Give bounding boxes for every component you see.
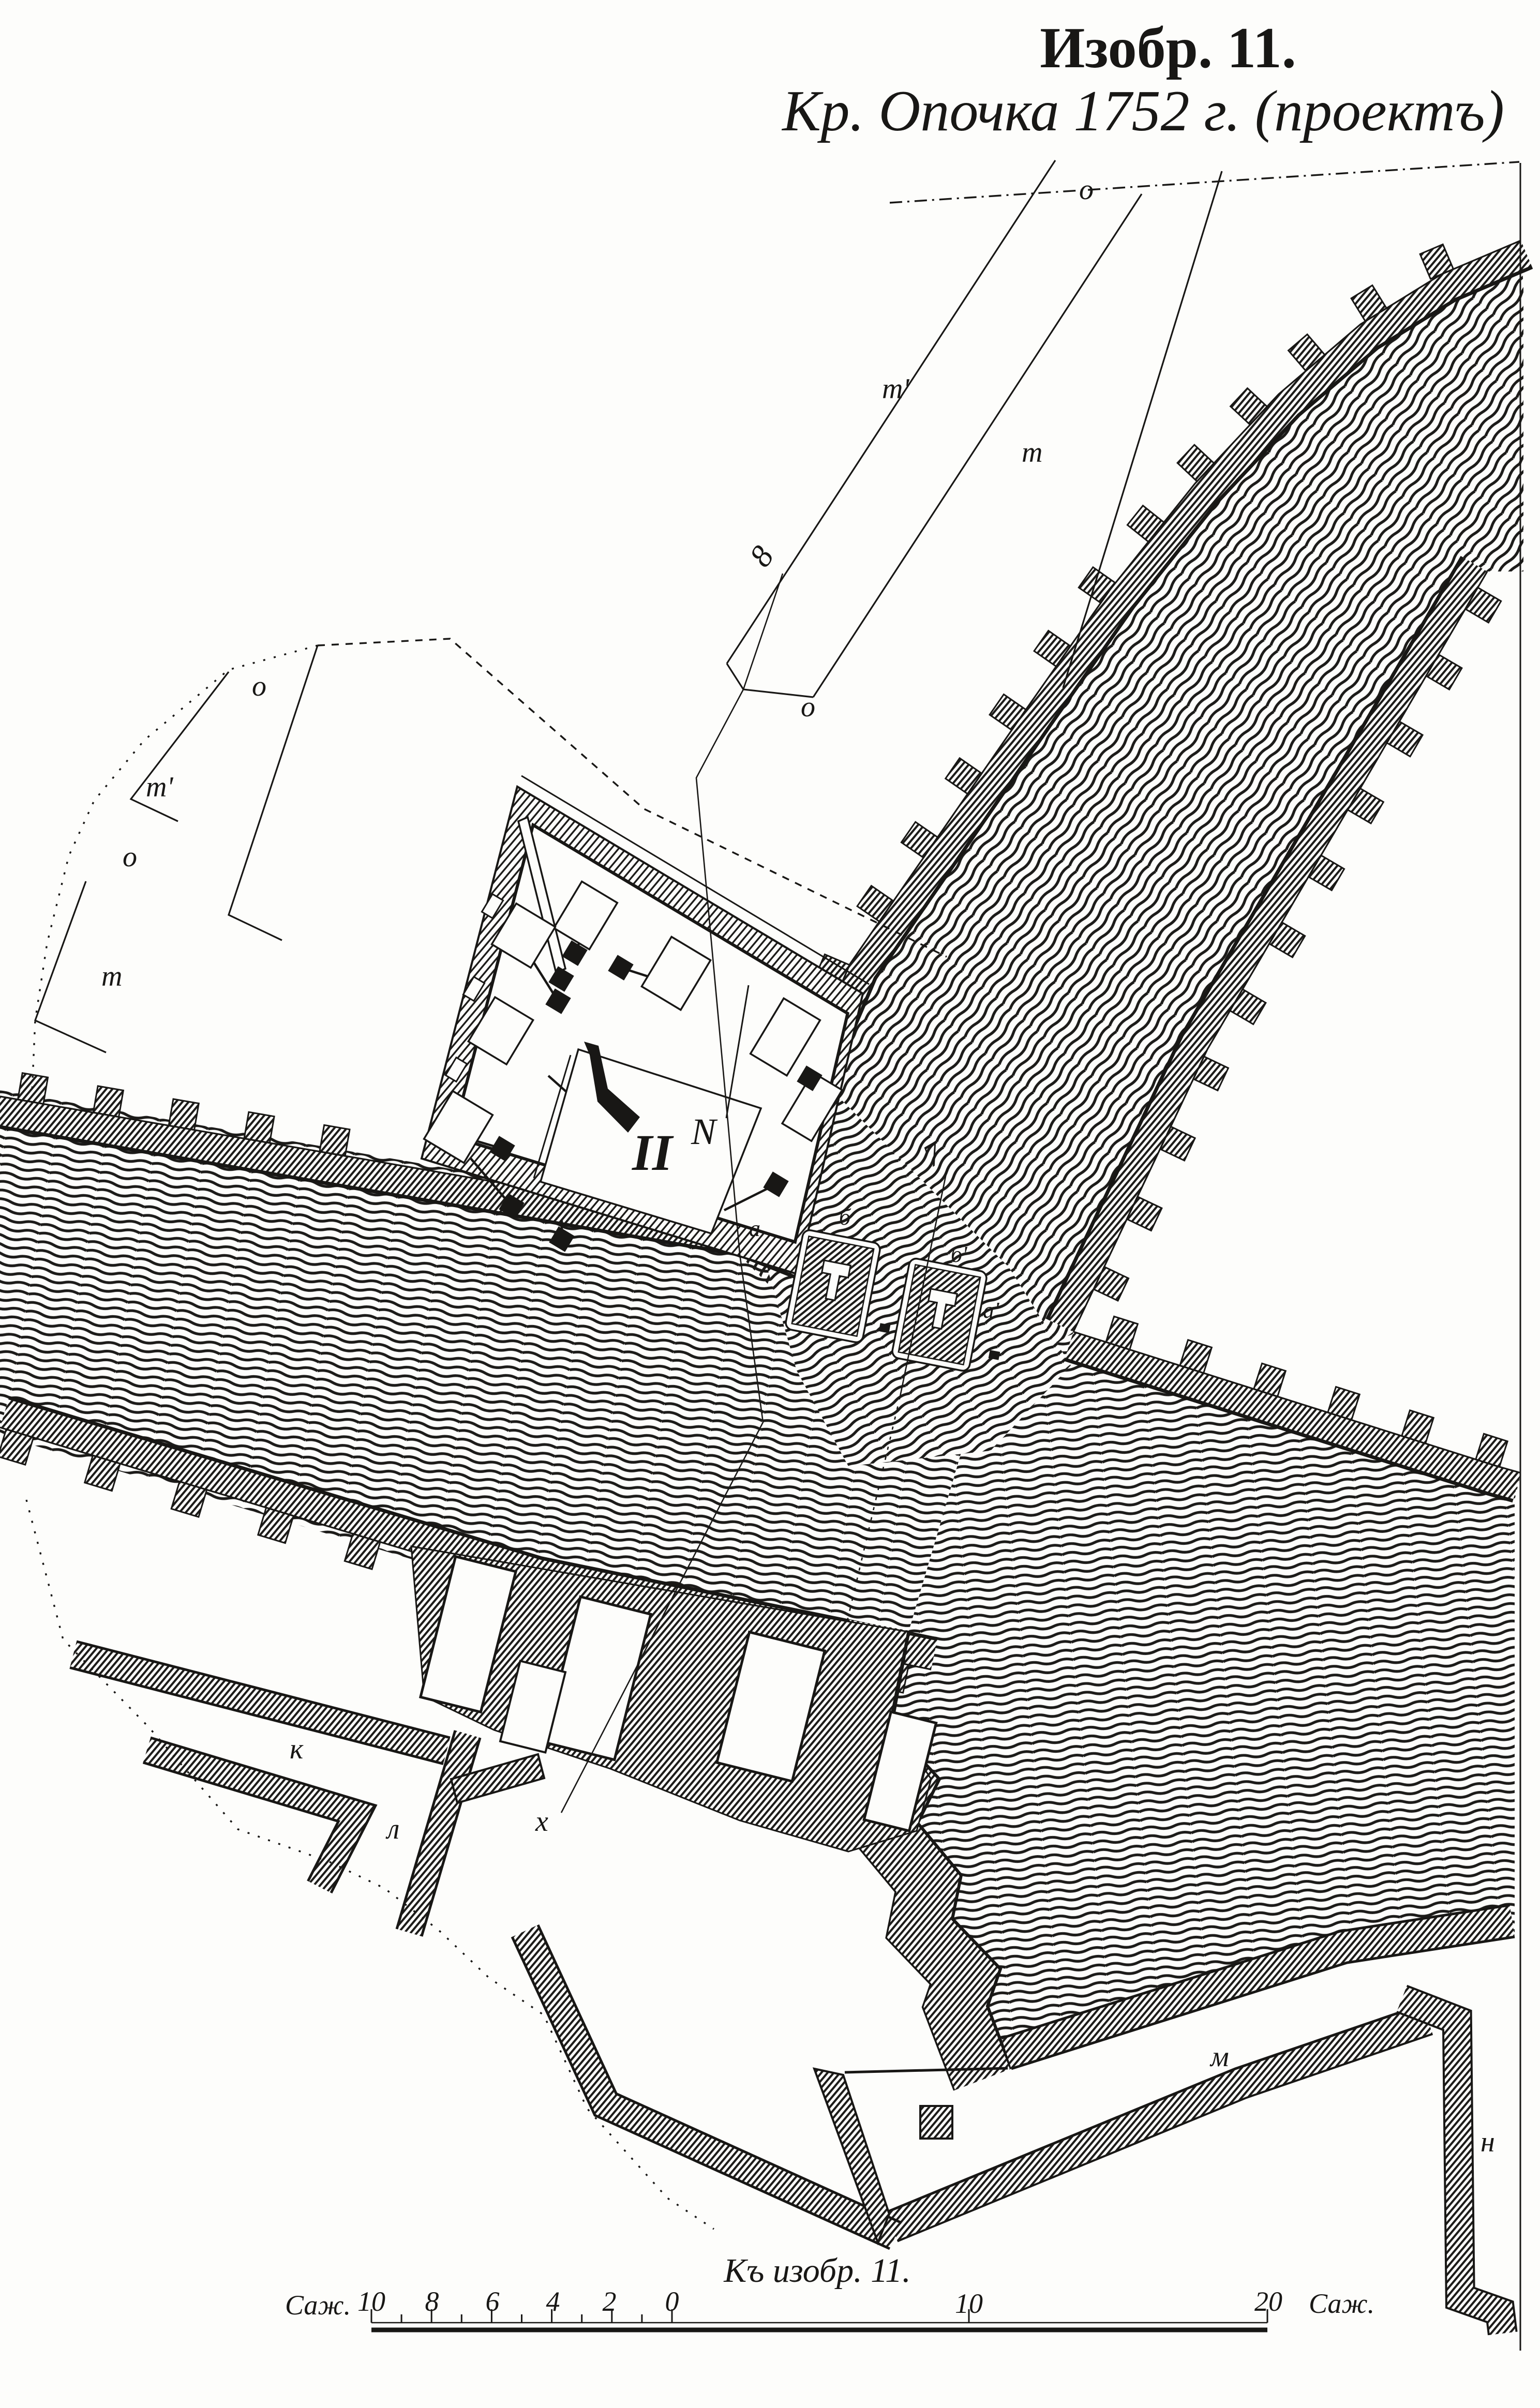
svg-text:Саж.: Саж. bbox=[1309, 2288, 1374, 2319]
svg-text:а': а' bbox=[983, 1298, 1000, 1323]
svg-text:20: 20 bbox=[1254, 2286, 1282, 2317]
svg-text:о: о bbox=[123, 841, 137, 873]
svg-text:о: о bbox=[1079, 174, 1094, 206]
svg-text:к: к bbox=[290, 1733, 304, 1765]
svg-text:а: а bbox=[749, 1216, 760, 1241]
svg-text:Къ изобр. 11.: Къ изобр. 11. bbox=[723, 2252, 910, 2290]
svg-text:Саж.: Саж. bbox=[285, 2290, 351, 2321]
svg-text:Кр. Опочка 1752 г. (проектъ): Кр. Опочка 1752 г. (проектъ) bbox=[781, 79, 1504, 143]
svg-text:о: о bbox=[801, 691, 815, 723]
svg-text:т: т bbox=[101, 960, 122, 992]
svg-text:т': т' bbox=[146, 771, 173, 803]
svg-text:4: 4 bbox=[546, 2286, 560, 2317]
svg-text:0: 0 bbox=[665, 2286, 679, 2317]
svg-text:о: о bbox=[252, 670, 266, 702]
svg-text:м: м bbox=[1209, 2041, 1229, 2073]
svg-text:т': т' bbox=[882, 373, 909, 405]
svg-text:2: 2 bbox=[603, 2286, 617, 2317]
svg-text:II: II bbox=[632, 1124, 674, 1181]
svg-text:Изобр. 11.: Изобр. 11. bbox=[1040, 16, 1296, 80]
svg-text:N: N bbox=[691, 1111, 718, 1152]
svg-text:б': б' bbox=[951, 1242, 968, 1267]
svg-text:10: 10 bbox=[357, 2286, 385, 2317]
svg-text:б: б bbox=[839, 1205, 851, 1230]
svg-text:т: т bbox=[1022, 437, 1042, 469]
svg-text:н: н bbox=[1481, 2126, 1495, 2158]
svg-text:8: 8 bbox=[425, 2286, 439, 2317]
svg-text:10: 10 bbox=[955, 2288, 983, 2319]
svg-text:л: л bbox=[385, 1813, 399, 1845]
svg-text:х: х bbox=[535, 1805, 548, 1838]
svg-text:6: 6 bbox=[486, 2286, 500, 2317]
